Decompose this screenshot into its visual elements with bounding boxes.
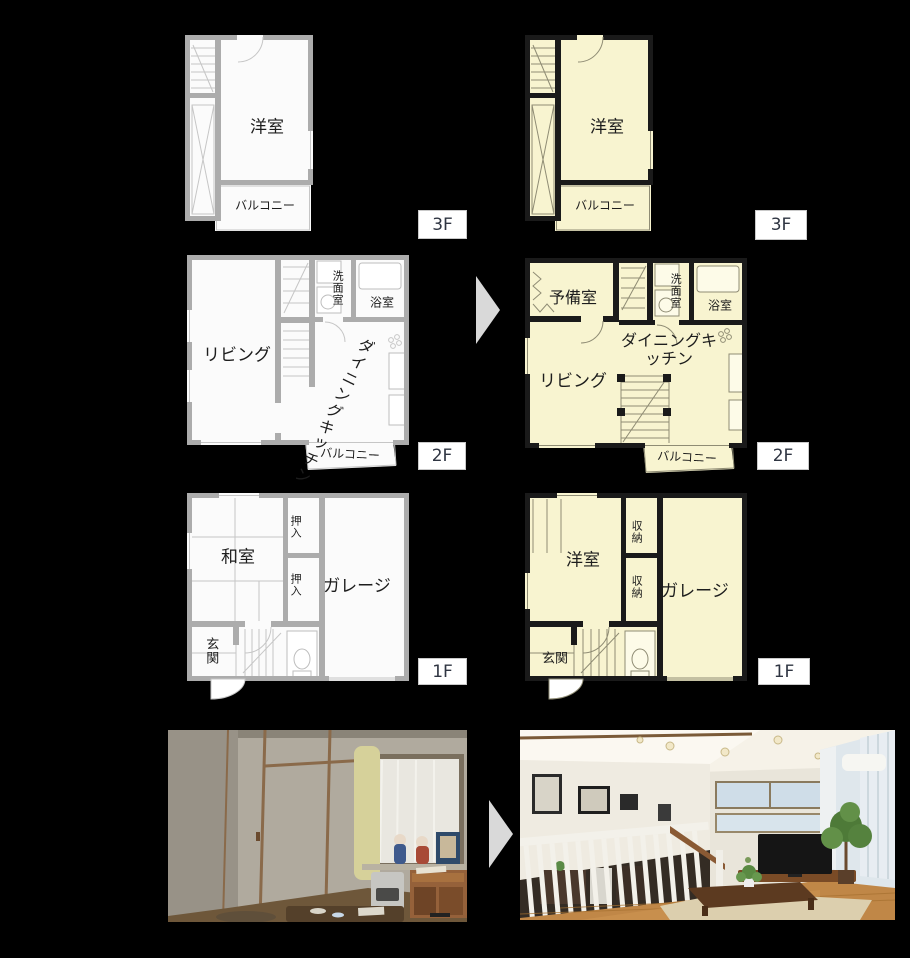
toilet — [625, 631, 655, 677]
floor-tag-1f-right: 1F — [758, 658, 810, 685]
entrance-door-arc — [211, 679, 245, 699]
room-label-3f-before-balcony: バルコニー — [235, 199, 295, 212]
floor-plan-3f-after: 洋室 バルコニー — [525, 35, 653, 235]
floor-plan-1f-after: 洋室 収納 収納 ガレージ 玄関 — [525, 493, 747, 700]
before-photo-illustration — [168, 730, 467, 922]
floor-plan-1f-before: 和室 押入 押入 ガレージ 玄関 — [187, 493, 409, 700]
room-label-3f-after-main: 洋室 — [590, 118, 624, 137]
room-label-2f-before-living: リビング — [203, 346, 271, 365]
floor-plan-2f-before: リビング ダイニングキッチン 洗面室 浴室 バルコニー — [187, 255, 409, 472]
floor-tag-2f-left: 2F — [418, 442, 466, 470]
after-photo — [520, 730, 895, 920]
floor-tag-2f-left-text: 2F — [432, 446, 453, 466]
floor-tag-3f-right: 3F — [755, 210, 807, 240]
room-label-2f-after-washroom: 洗面室 — [669, 273, 681, 309]
room-label-2f-after-spare: 予備室 — [549, 289, 597, 307]
room-label-2f-after-dining: ダイニングキッチン — [621, 332, 717, 368]
wood-cabinet — [410, 866, 467, 918]
kitchen-counter — [729, 354, 743, 430]
toilet — [287, 631, 317, 677]
kitchen-counter — [389, 353, 405, 425]
tv — [758, 834, 832, 874]
floor-tag-3f-left-text: 3F — [432, 215, 453, 235]
room-label-1f-after-garage: ガレージ — [661, 582, 729, 601]
air-conditioner — [842, 754, 886, 771]
after-photo-illustration — [520, 730, 895, 920]
floor-tag-1f-left-text: 1F — [432, 662, 453, 682]
room-label-1f-before-garage: ガレージ — [323, 577, 391, 596]
room-label-3f-after-balcony: バルコニー — [575, 199, 635, 212]
room-label-2f-before-bath: 浴室 — [370, 296, 394, 309]
photos-before-after-arrow-icon — [489, 800, 513, 868]
floor-plan-3f-before: 洋室 バルコニー — [185, 35, 313, 235]
room-label-1f-before-closet-lower: 押入 — [289, 573, 301, 597]
floor-tag-1f-right-text: 1F — [774, 662, 795, 682]
floor-tag-3f-left: 3F — [418, 210, 467, 239]
room-label-1f-after-entrance: 玄関 — [542, 653, 568, 668]
room-label-1f-before-closet-upper: 押入 — [289, 515, 301, 539]
room-label-1f-before-entrance: 玄関 — [203, 637, 218, 665]
room-label-1f-after-storage-upper: 収納 — [630, 520, 642, 544]
room-label-1f-before-room: 和室 — [221, 548, 255, 567]
before-photo — [168, 730, 467, 922]
floor-plan-2f-after: 予備室 リビング ダイニングキッチン 洗面室 浴室 バルコニー — [525, 258, 747, 475]
room-label-3f-before-main: 洋室 — [250, 118, 284, 137]
slit-windows — [716, 782, 824, 832]
bathtub — [359, 263, 401, 289]
floor-tag-2f-right: 2F — [757, 442, 809, 470]
curtain — [354, 746, 380, 880]
floor-tag-2f-right-text: 2F — [773, 446, 794, 466]
room-label-1f-after-storage-lower: 収納 — [630, 575, 642, 599]
renovation-before-after-comparison: 洋室 バルコニー 洋室 バ — [0, 0, 910, 958]
floor-tag-3f-right-text: 3F — [771, 215, 792, 235]
room-label-2f-after-living: リビング — [539, 372, 607, 391]
plans-before-after-arrow-icon — [476, 276, 500, 344]
entrance-door-arc — [549, 679, 583, 699]
room-label-2f-after-bath: 浴室 — [708, 299, 732, 312]
room-label-1f-after-room: 洋室 — [566, 551, 600, 570]
floor-tag-1f-left: 1F — [418, 658, 467, 685]
room-label-2f-before-washroom: 洗面室 — [331, 270, 343, 306]
low-table — [286, 906, 404, 922]
